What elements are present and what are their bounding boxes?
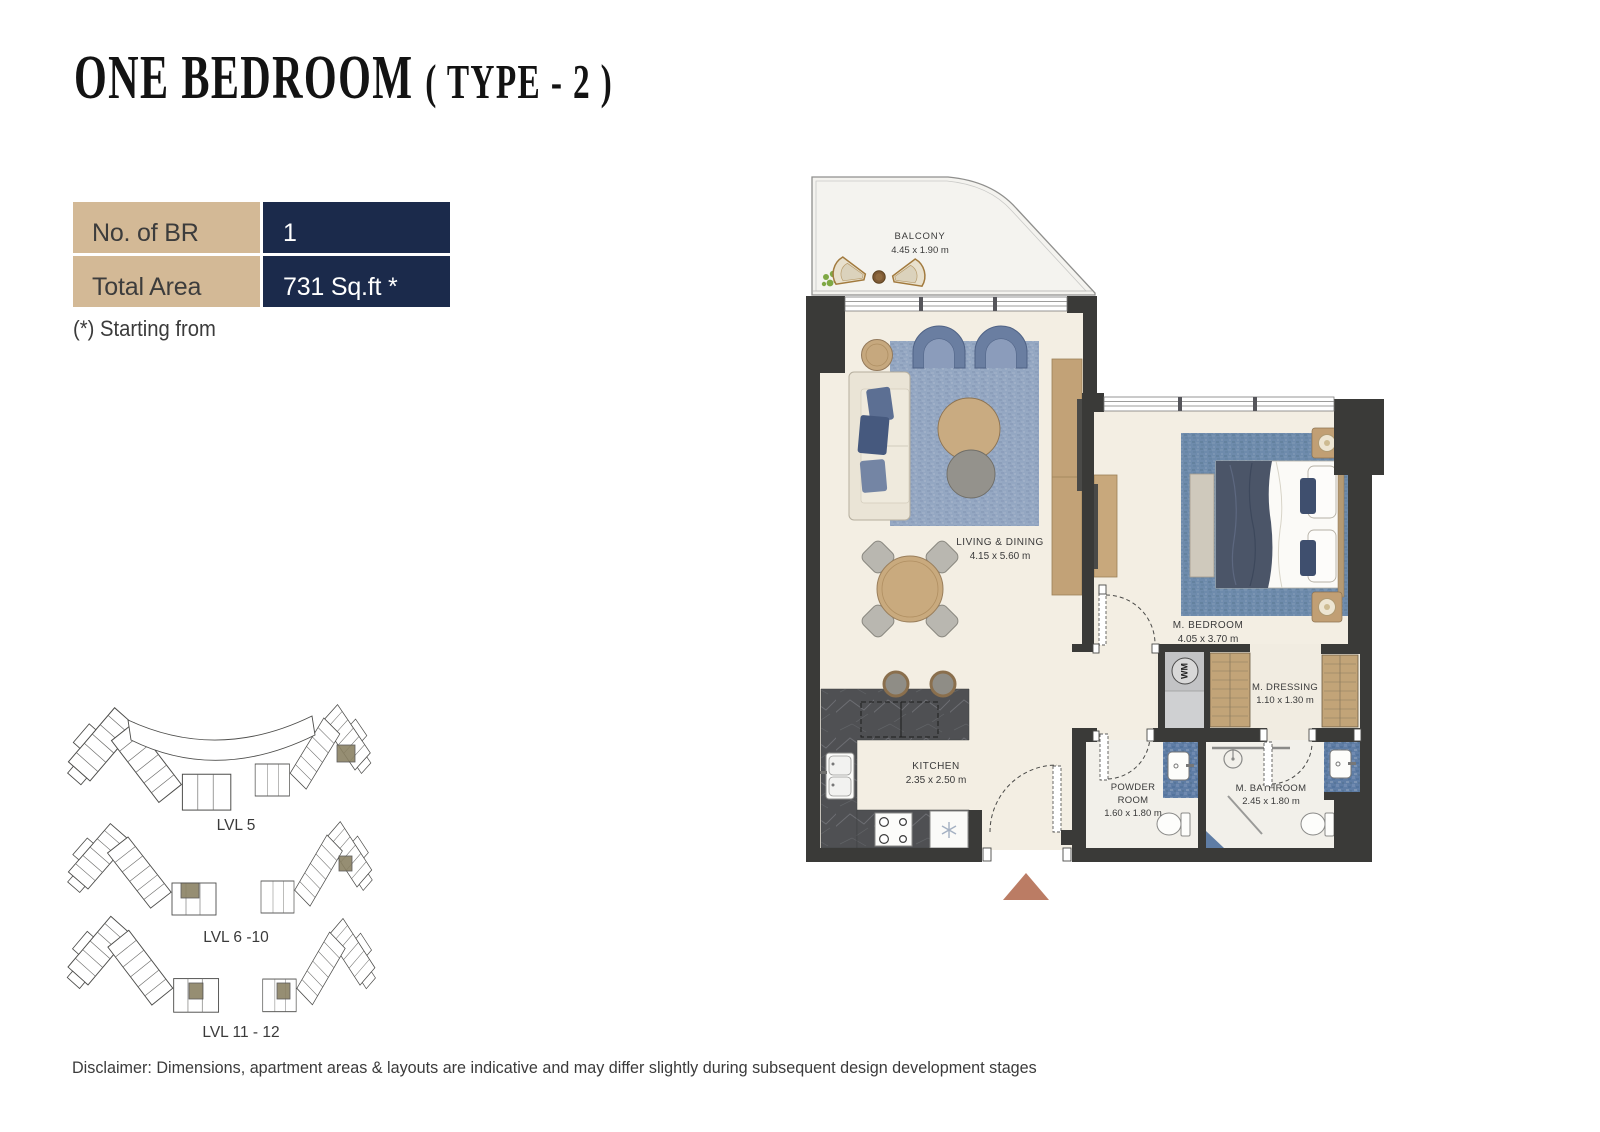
svg-text:2.45 x 1.80 m: 2.45 x 1.80 m	[1242, 796, 1300, 807]
svg-text:WM: WM	[1179, 663, 1189, 679]
svg-text:4.45 x 1.90 m: 4.45 x 1.90 m	[891, 245, 949, 256]
svg-text:KITCHEN: KITCHEN	[912, 761, 959, 772]
svg-text:LIVING & DINING: LIVING & DINING	[956, 537, 1044, 548]
svg-text:POWDER: POWDER	[1111, 782, 1156, 793]
svg-text:M. DRESSING: M. DRESSING	[1252, 682, 1318, 693]
svg-text:2.35 x 2.50 m: 2.35 x 2.50 m	[906, 775, 967, 786]
svg-text:4.15 x 5.60 m: 4.15 x 5.60 m	[970, 551, 1031, 562]
svg-text:LVL 6 -10: LVL 6 -10	[203, 929, 269, 946]
svg-text:1.60 x 1.80 m: 1.60 x 1.80 m	[1104, 808, 1162, 819]
svg-text:M. BEDROOM: M. BEDROOM	[1173, 620, 1244, 631]
svg-text:ROOM: ROOM	[1118, 795, 1149, 806]
svg-text:LVL 5: LVL 5	[217, 817, 256, 834]
svg-text:1.10 x 1.30 m: 1.10 x 1.30 m	[1256, 695, 1314, 706]
svg-text:BALCONY: BALCONY	[894, 231, 945, 242]
svg-text:4.05 x 3.70 m: 4.05 x 3.70 m	[1178, 634, 1239, 645]
svg-text:LVL 11 - 12: LVL 11 - 12	[202, 1024, 279, 1041]
